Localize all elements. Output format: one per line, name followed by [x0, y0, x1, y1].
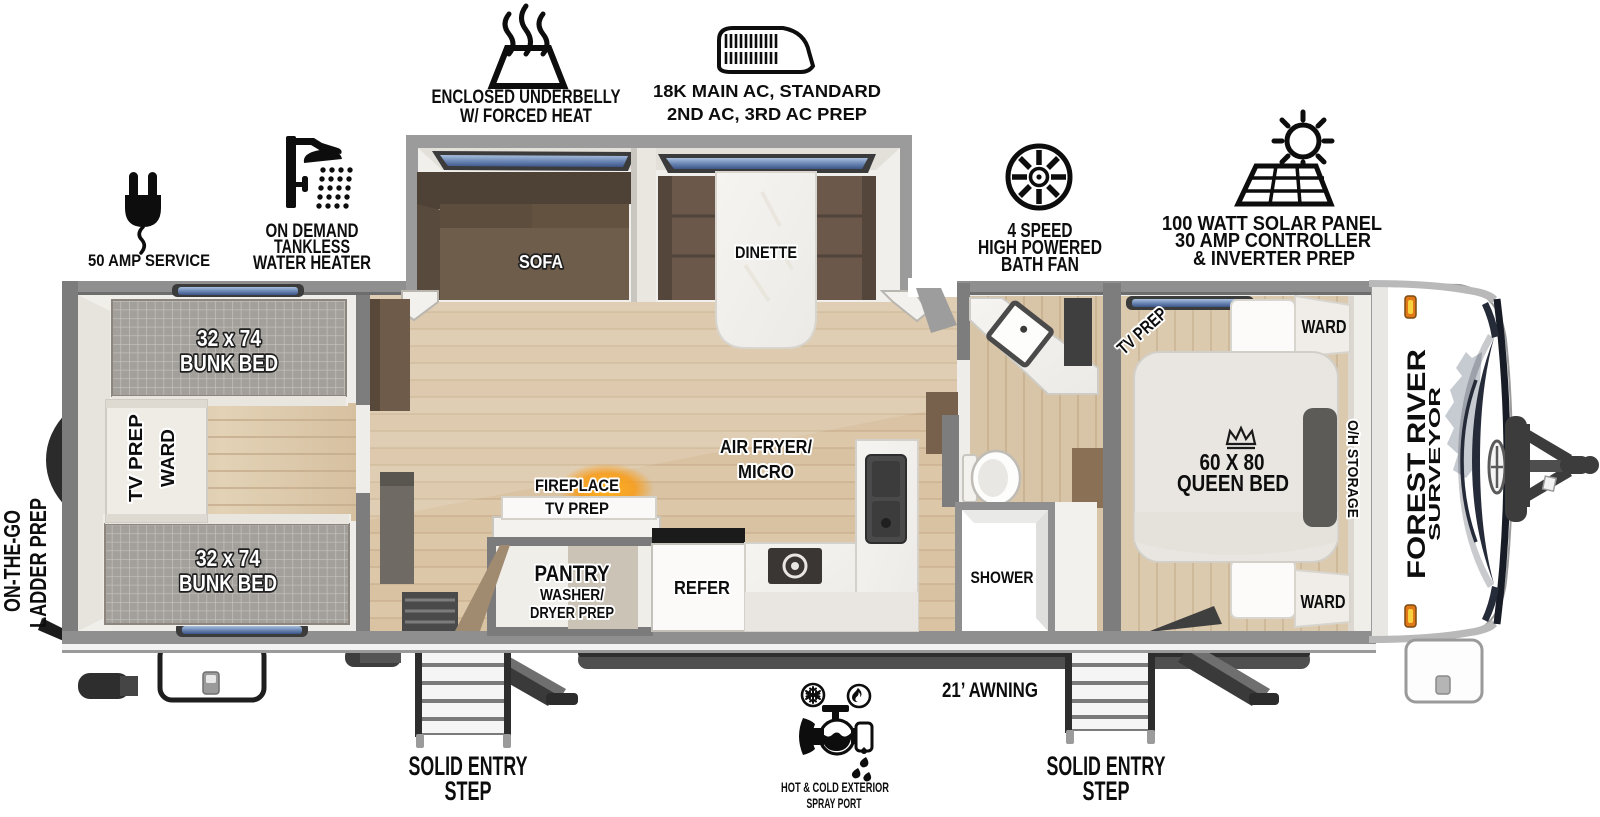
svg-text:2ND AC, 3RD AC PREP: 2ND AC, 3RD AC PREP — [667, 104, 867, 124]
svg-text:WASHER/: WASHER/ — [540, 587, 605, 604]
svg-text:DINETTE: DINETTE — [735, 243, 797, 262]
svg-text:QUEEN BED: QUEEN BED — [1177, 470, 1289, 496]
svg-text:LADDER PREP: LADDER PREP — [25, 498, 51, 628]
svg-text:BUNK BED: BUNK BED — [179, 570, 277, 596]
svg-text:FIREPLACE: FIREPLACE — [535, 476, 619, 495]
svg-text:WARD: WARD — [1302, 317, 1347, 337]
svg-text:50 AMP SERVICE: 50 AMP SERVICE — [88, 251, 210, 270]
svg-text:32 x 74: 32 x 74 — [196, 545, 260, 571]
svg-text:W/ FORCED HEAT: W/ FORCED HEAT — [460, 106, 592, 127]
svg-text:SHOWER: SHOWER — [971, 568, 1034, 587]
svg-text:O/H STORAGE: O/H STORAGE — [1344, 420, 1360, 518]
svg-text:REFER: REFER — [674, 578, 730, 598]
svg-text:BUNK BED: BUNK BED — [180, 350, 278, 376]
svg-text:MICRO: MICRO — [738, 462, 794, 482]
svg-text:STEP: STEP — [1083, 776, 1130, 806]
svg-text:TV PREP: TV PREP — [545, 499, 609, 518]
svg-text:WARD: WARD — [1301, 592, 1346, 612]
svg-text:WATER HEATER: WATER HEATER — [253, 253, 371, 274]
svg-text:ON-THE-GO: ON-THE-GO — [0, 510, 25, 612]
svg-text:18K MAIN AC, STANDARD: 18K MAIN AC, STANDARD — [653, 81, 881, 101]
svg-text:SOFA: SOFA — [519, 252, 563, 272]
svg-text:PANTRY: PANTRY — [535, 561, 610, 586]
svg-text:TV PREP: TV PREP — [126, 414, 146, 502]
svg-text:STEP: STEP — [445, 776, 492, 806]
svg-text:AIR FRYER/: AIR FRYER/ — [720, 437, 812, 457]
svg-text:HOT & COLD EXTERIOR: HOT & COLD EXTERIOR — [781, 779, 889, 795]
svg-text:WARD: WARD — [158, 429, 178, 487]
svg-text:ENCLOSED UNDERBELLY: ENCLOSED UNDERBELLY — [432, 87, 621, 108]
svg-text:32 x 74: 32 x 74 — [197, 325, 261, 351]
svg-text:SURVEYOR: SURVEYOR — [1427, 386, 1444, 541]
svg-text:& INVERTER PREP: & INVERTER PREP — [1193, 248, 1355, 270]
svg-text:SPRAY PORT: SPRAY PORT — [807, 795, 862, 811]
svg-text:BATH FAN: BATH FAN — [1001, 254, 1079, 276]
svg-text:DRYER PREP: DRYER PREP — [530, 605, 614, 622]
svg-text:21’ AWNING: 21’ AWNING — [942, 679, 1038, 702]
